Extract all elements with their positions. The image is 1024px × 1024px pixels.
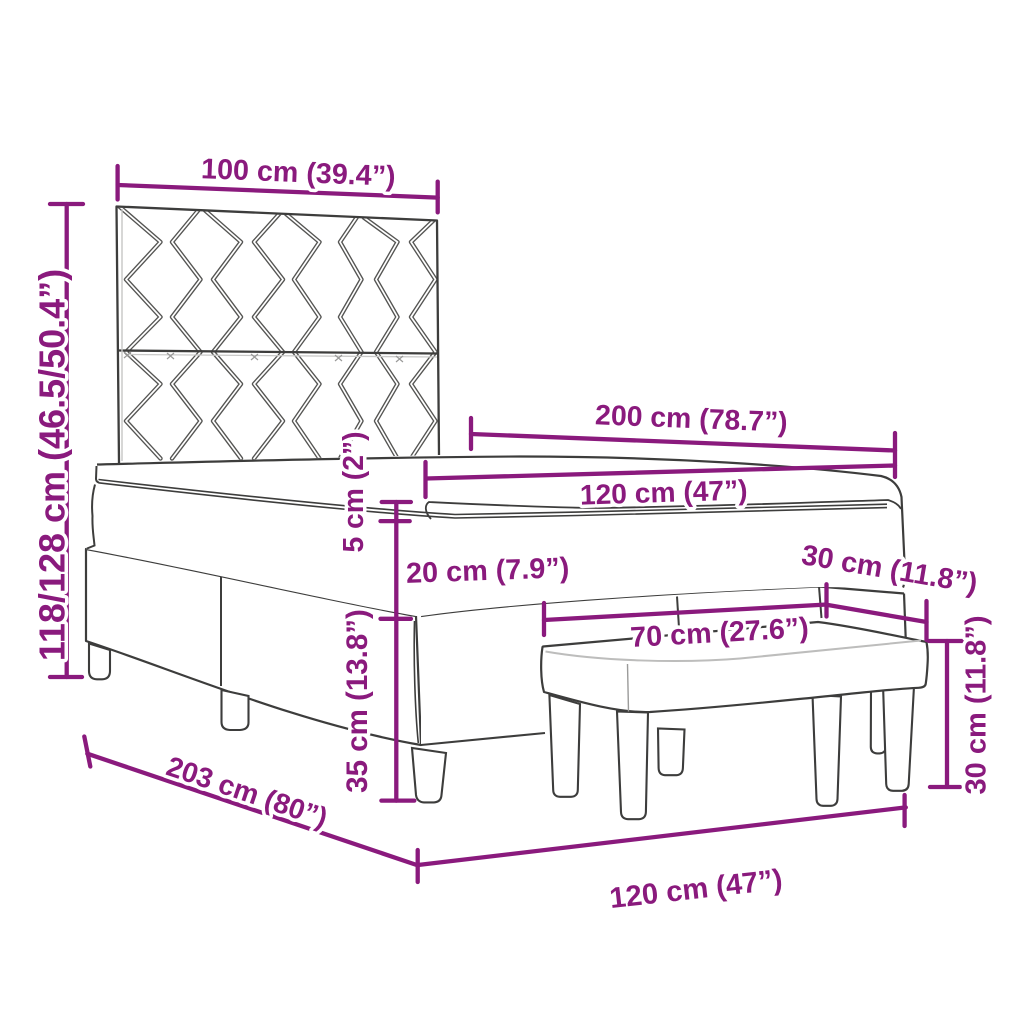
svg-text:20 cm (7.9”): 20 cm (7.9”) <box>406 552 570 590</box>
svg-text:35 cm (13.8”): 35 cm (13.8”) <box>341 609 374 793</box>
svg-text:30 cm (11.8”): 30 cm (11.8”) <box>961 616 993 795</box>
svg-text:5 cm (2”): 5 cm (2”) <box>337 431 369 552</box>
svg-text:118/128 cm (46.5/50.4”): 118/128 cm (46.5/50.4”) <box>32 269 73 661</box>
svg-text:120 cm (47”): 120 cm (47”) <box>579 473 748 510</box>
